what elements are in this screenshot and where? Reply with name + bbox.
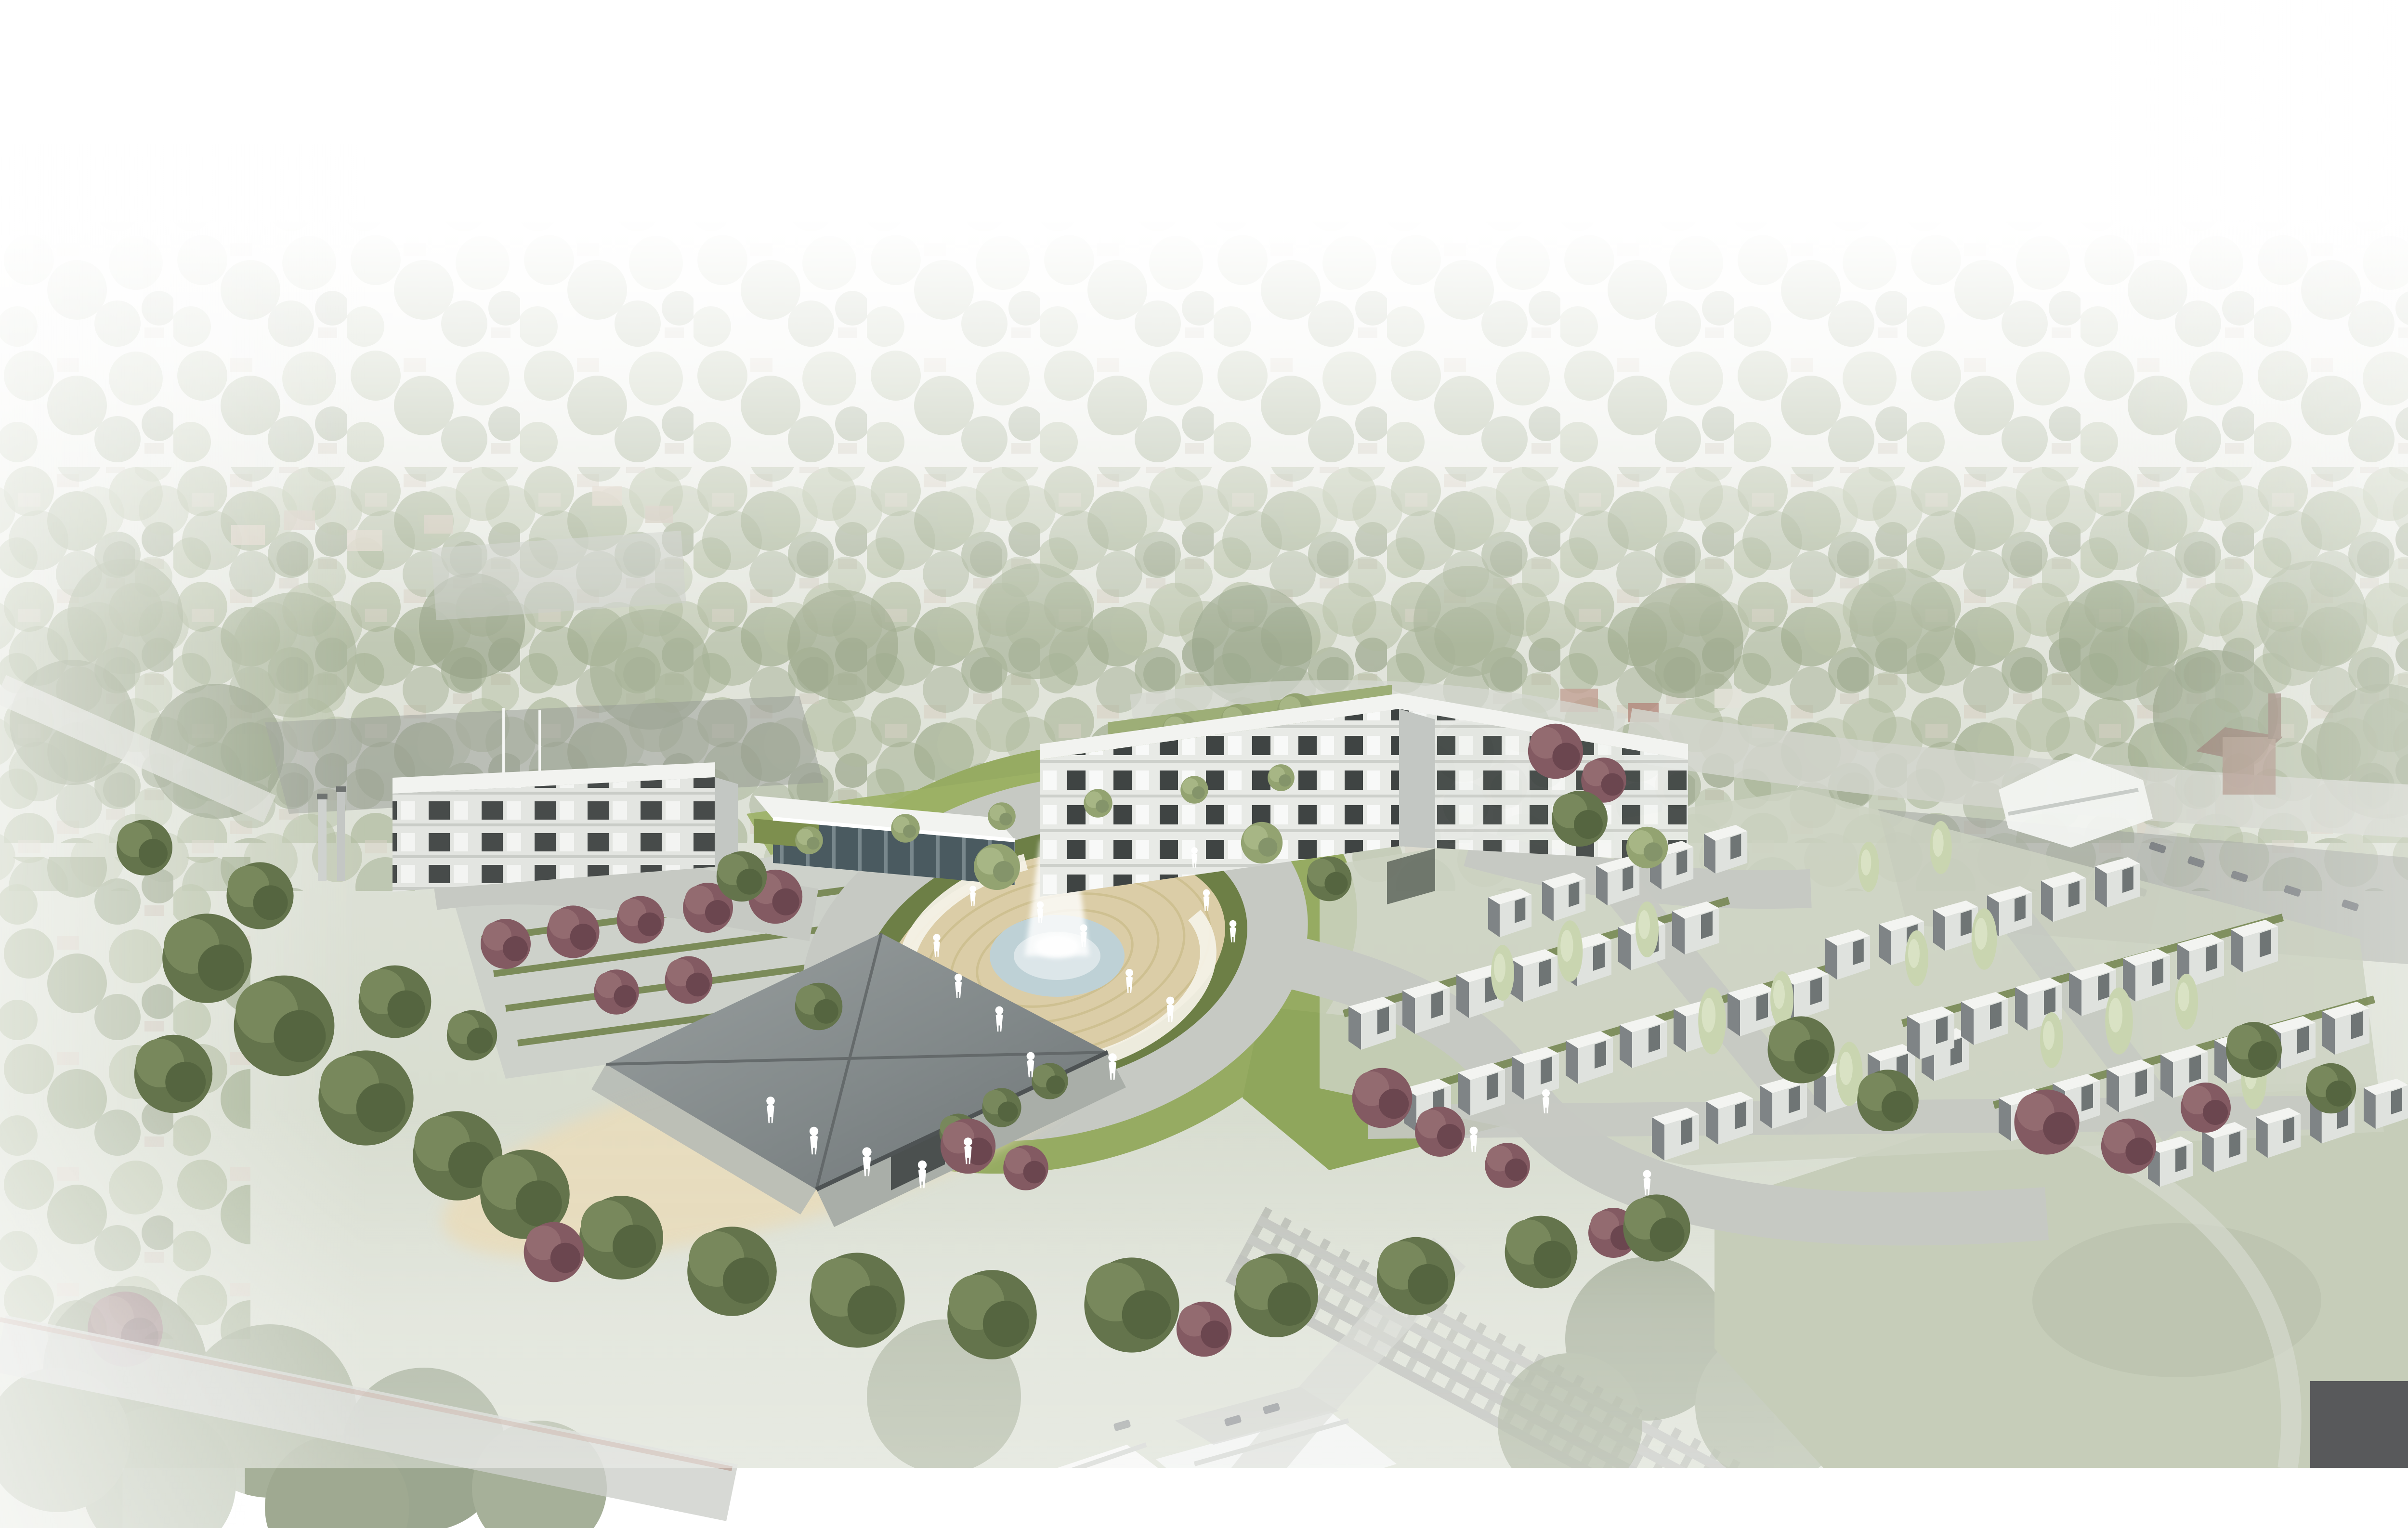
aerial-rendering-canvas: [0, 0, 2408, 1528]
chimney-stack: [318, 797, 327, 881]
trivers-watermark-text: Trivers: [2402, 1402, 2408, 1528]
left-haze-veil: [0, 144, 366, 1528]
trivers-watermark: Trivers: [2310, 1381, 2408, 1528]
aerial-rendering-scene: Trivers: [0, 0, 2408, 1528]
chimney-stack: [337, 790, 345, 881]
